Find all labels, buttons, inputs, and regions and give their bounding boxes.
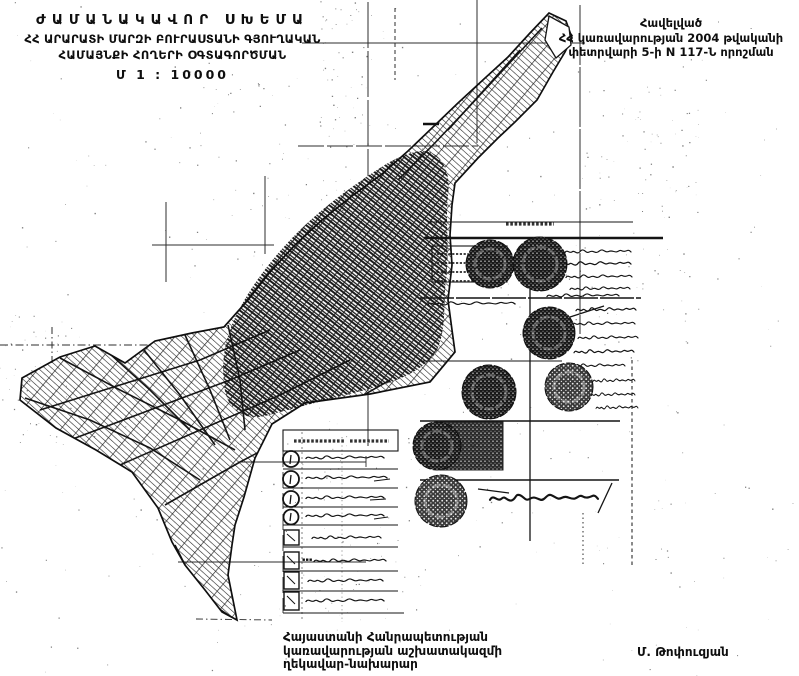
- title-block: ԺԱՄԱՆԱԿԱՎՈՐ ՍԽԵՄԱ ՀՀ ԱՐԱՐԱՏԻ ՄԱՐԶԻ ԲՈՒՐԱ…: [0, 12, 345, 82]
- footer-official-line: Հայաստանի Հանրապետության: [283, 631, 502, 645]
- land-parcels-band: [20, 13, 572, 620]
- approval-block: Հավելված ՀՀ կառավարության 2004 թվականի փ…: [545, 16, 797, 60]
- official-seal: [513, 237, 567, 291]
- legend-row: [283, 471, 398, 488]
- legend-row: [283, 592, 404, 613]
- footer-official-line: ղեկավար-նախարար: [283, 658, 502, 672]
- title-subject-line: ՀԱՄԱՅՆՔԻ ՀՈՂԵՐԻ ՕԳՏԱԳՈՐԾՄԱՆ: [0, 48, 345, 62]
- legend-row: [283, 510, 398, 526]
- legend-row: [283, 491, 398, 507]
- approval-line: ՀՀ կառավարության 2004 թվականի: [545, 31, 797, 46]
- document-title: ԺԱՄԱՆԱԿԱՎՈՐ ՍԽԵՄԱ: [0, 12, 345, 28]
- official-seal: [523, 307, 575, 359]
- scanned-map-document: ԺԱՄԱՆԱԿԱՎՈՐ ՍԽԵՄԱ ՀՀ ԱՐԱՐԱՏԻ ՄԱՐԶԻ ԲՈՒՐԱ…: [0, 0, 799, 676]
- signatory-name: Մ. Թոփուզյան: [637, 645, 729, 659]
- map-scale: Մ 1 : 10000: [0, 67, 345, 82]
- legend-row: [283, 572, 398, 591]
- approval-line: Հավելված: [545, 16, 797, 31]
- footer-official-title: Հայաստանի Հանրապետության կառավարության ա…: [283, 631, 502, 672]
- approval-line: փետրվարի 5-ի N 117-Ն որոշման: [545, 45, 797, 60]
- legend-row: [283, 530, 398, 547]
- legend-row: [283, 552, 398, 571]
- official-seal: [462, 365, 516, 419]
- official-seal: [466, 240, 514, 288]
- legend-row: [283, 451, 398, 469]
- map-legend: [283, 430, 404, 622]
- map-scan-svg: [0, 0, 799, 676]
- official-seal: [545, 363, 593, 411]
- official-seal: [413, 422, 461, 470]
- footer-official-line: կառավարության աշխատակազմի: [283, 645, 502, 659]
- signature-scrawl: [490, 483, 612, 513]
- official-seal: [415, 475, 467, 527]
- title-region-line: ՀՀ ԱՐԱՐԱՏԻ ՄԱՐԶԻ ԲՈՒՐԱՍՏԱՆԻ ԳՅՈՒՂԱԿԱՆ: [0, 32, 345, 46]
